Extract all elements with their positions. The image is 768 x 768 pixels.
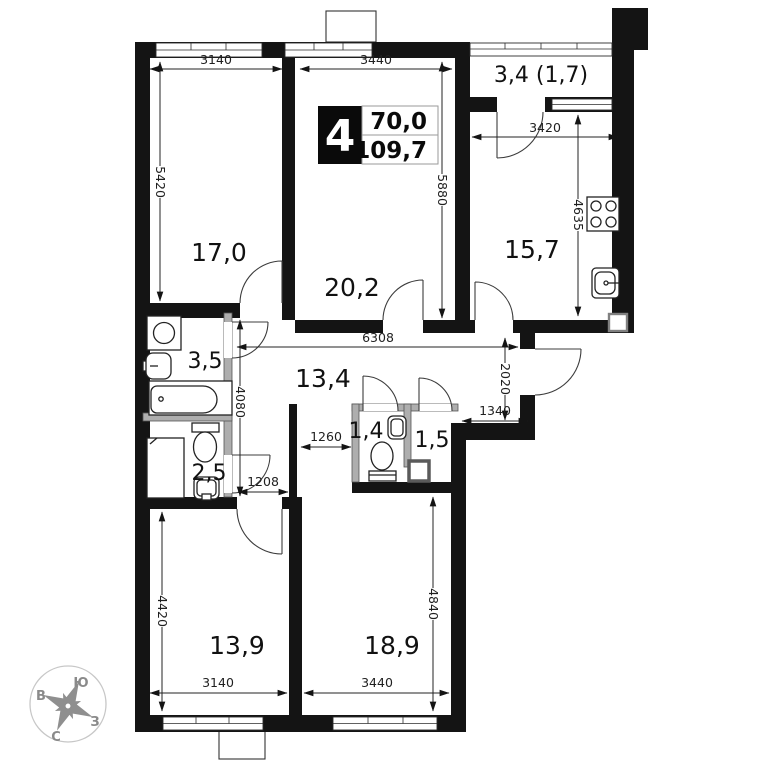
label-hallway: 13,4 bbox=[295, 364, 351, 393]
opening-bathroom bbox=[224, 322, 232, 358]
badge-living-area: 70,0 bbox=[370, 109, 427, 135]
wall-room17-room202 bbox=[282, 56, 295, 320]
info-badge: 4 70,0 109,7 bbox=[318, 106, 438, 164]
washing-machine-icon bbox=[147, 316, 181, 350]
window-room189 bbox=[333, 717, 437, 730]
dim-1260: 1260 bbox=[310, 429, 342, 444]
opening-room17 bbox=[240, 303, 282, 318]
opening-wc14 bbox=[363, 404, 398, 411]
toilet-14-icon bbox=[369, 442, 396, 481]
storage-duct bbox=[409, 461, 429, 481]
kitchen-duct bbox=[609, 314, 627, 331]
label-storage: 1,5 bbox=[415, 428, 450, 453]
opening-kitchen bbox=[475, 320, 513, 333]
badge-rooms-count: 4 bbox=[325, 111, 356, 162]
opening-balcony bbox=[497, 97, 545, 112]
door-room139 bbox=[237, 509, 282, 554]
dim-5420: 5420 bbox=[153, 166, 168, 198]
window-balcony-glazing bbox=[470, 43, 612, 56]
floor-plan: 3140 3440 5420 5880 3420 4635 6308 4080 … bbox=[0, 0, 768, 768]
opening-room139 bbox=[237, 497, 282, 509]
compass-west: З bbox=[90, 715, 99, 730]
wall-room189-top bbox=[352, 482, 466, 493]
exterior-stub-bottom bbox=[219, 731, 265, 759]
door-bathroom bbox=[232, 322, 268, 358]
floor-plan-drawing: 3140 3440 5420 5880 3420 4635 6308 4080 … bbox=[0, 0, 768, 768]
label-room202: 20,2 bbox=[324, 273, 380, 302]
dim-4635: 4635 bbox=[571, 199, 586, 231]
cabinet-25-icon bbox=[147, 438, 184, 498]
opening-storage bbox=[419, 404, 452, 411]
dim-5880: 5880 bbox=[435, 174, 450, 206]
dim-6308: 6308 bbox=[362, 330, 394, 345]
exterior-stub-top bbox=[326, 11, 376, 42]
compass-north: С bbox=[51, 730, 61, 745]
bathtub-icon bbox=[149, 381, 232, 415]
dim-4840: 4840 bbox=[426, 588, 441, 620]
label-kitchen: 15,7 bbox=[504, 235, 560, 264]
wall-right-lower bbox=[451, 423, 466, 732]
wall-room139-room189 bbox=[289, 497, 302, 731]
toilet-25-icon bbox=[192, 423, 219, 462]
compass-rose: Ю В З С bbox=[30, 666, 106, 745]
stove-icon bbox=[587, 197, 619, 231]
label-room17: 17,0 bbox=[191, 238, 247, 267]
label-bathroom: 3,5 bbox=[188, 349, 223, 374]
door-kitchen bbox=[475, 282, 513, 320]
wall-entry-horizontal bbox=[451, 423, 535, 440]
wall-left bbox=[135, 42, 150, 732]
badge-total-area: 109,7 bbox=[354, 138, 427, 164]
label-balcony: 3,4 (1,7) bbox=[494, 63, 588, 88]
door-room202 bbox=[383, 280, 423, 320]
sink-14-icon bbox=[388, 416, 406, 439]
compass-east: В bbox=[36, 689, 46, 704]
wall-corridor-spur bbox=[289, 404, 297, 497]
window-balcony-kitchen bbox=[552, 99, 612, 110]
bathroom-sink-icon bbox=[143, 353, 171, 379]
dim-3420: 3420 bbox=[529, 120, 561, 135]
label-wc25: 2,5 bbox=[192, 461, 227, 486]
window-room139 bbox=[163, 717, 263, 730]
label-wc14: 1,4 bbox=[349, 419, 384, 444]
dim-2020: 2020 bbox=[498, 363, 513, 395]
dim-3140-top: 3140 bbox=[200, 52, 232, 67]
kitchen-sink-icon bbox=[592, 268, 619, 298]
opening-entry bbox=[520, 349, 535, 395]
wall-corner-block bbox=[612, 8, 648, 50]
dim-3440-bottom: 3440 bbox=[361, 675, 393, 690]
window-room202 bbox=[285, 43, 372, 57]
door-room17 bbox=[240, 261, 282, 303]
dim-3140-bottom: 3140 bbox=[202, 675, 234, 690]
dim-1208: 1208 bbox=[247, 474, 279, 489]
door-balcony bbox=[497, 112, 543, 158]
dim-4080: 4080 bbox=[233, 386, 248, 418]
label-room189: 18,9 bbox=[364, 631, 420, 660]
compass-south: Ю bbox=[73, 676, 88, 691]
dim-1340: 1340 bbox=[479, 403, 511, 418]
dim-4420: 4420 bbox=[155, 595, 170, 627]
wall-room202-kitchen bbox=[455, 42, 470, 333]
door-entry bbox=[535, 349, 581, 395]
label-room139: 13,9 bbox=[209, 631, 265, 660]
dim-3440-top: 3440 bbox=[360, 52, 392, 67]
